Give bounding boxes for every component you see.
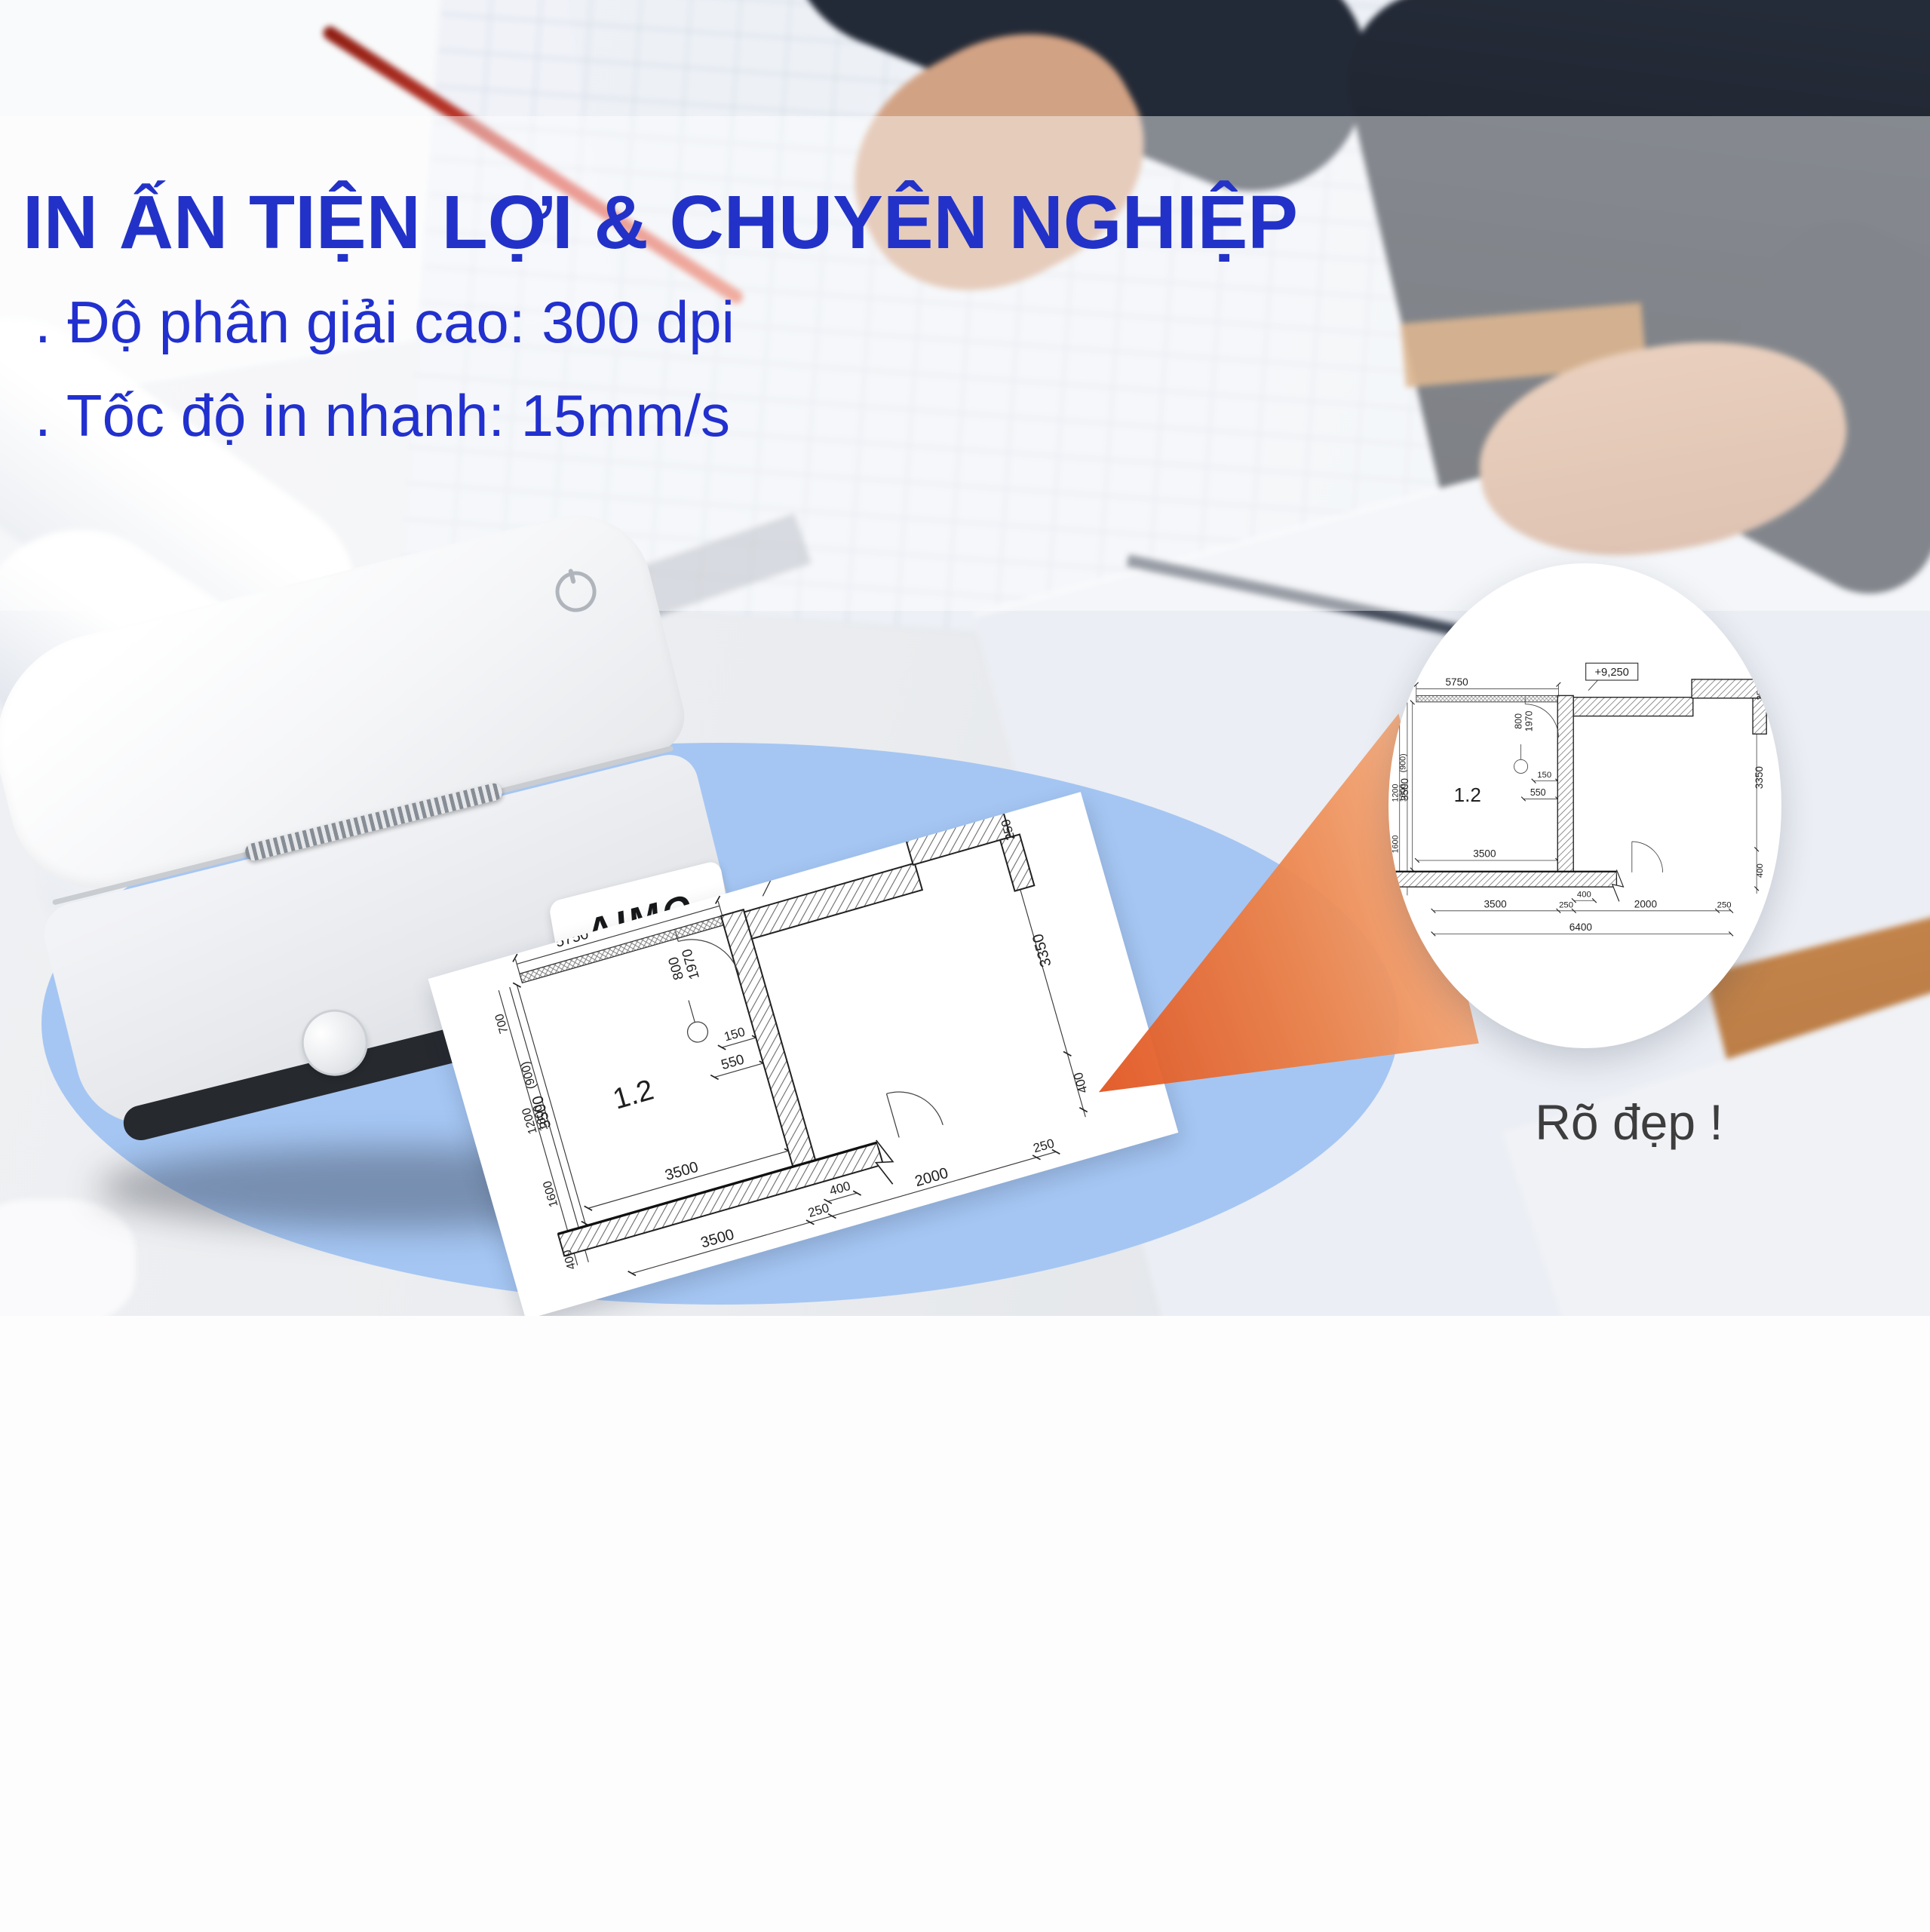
- page: IN ẤN TIỆN LỢI & CHUYÊN NGHIỆP . Độ phân…: [0, 0, 1930, 1932]
- hero-photo-section: IN ẤN TIỆN LỢI & CHUYÊN NGHIỆP . Độ phân…: [0, 0, 1930, 1316]
- feature-bullet-resolution: . Độ phân giải cao: 300 dpi: [35, 288, 735, 357]
- magnified-blueprint: [1388, 563, 1781, 1048]
- page-title: IN ẤN TIỆN LỢI & CHUYÊN NGHIỆP: [23, 179, 1298, 266]
- magnifier-caption: Rõ đẹp !: [1463, 1093, 1795, 1151]
- magnifier-circle: [1388, 563, 1781, 1048]
- comparison-section: 300DPI 203DPI M831 Máy in khác: [0, 1316, 1930, 1932]
- decor-glass: [0, 1199, 136, 1316]
- feature-bullet-speed: . Tốc độ in nhanh: 15mm/s: [35, 382, 730, 450]
